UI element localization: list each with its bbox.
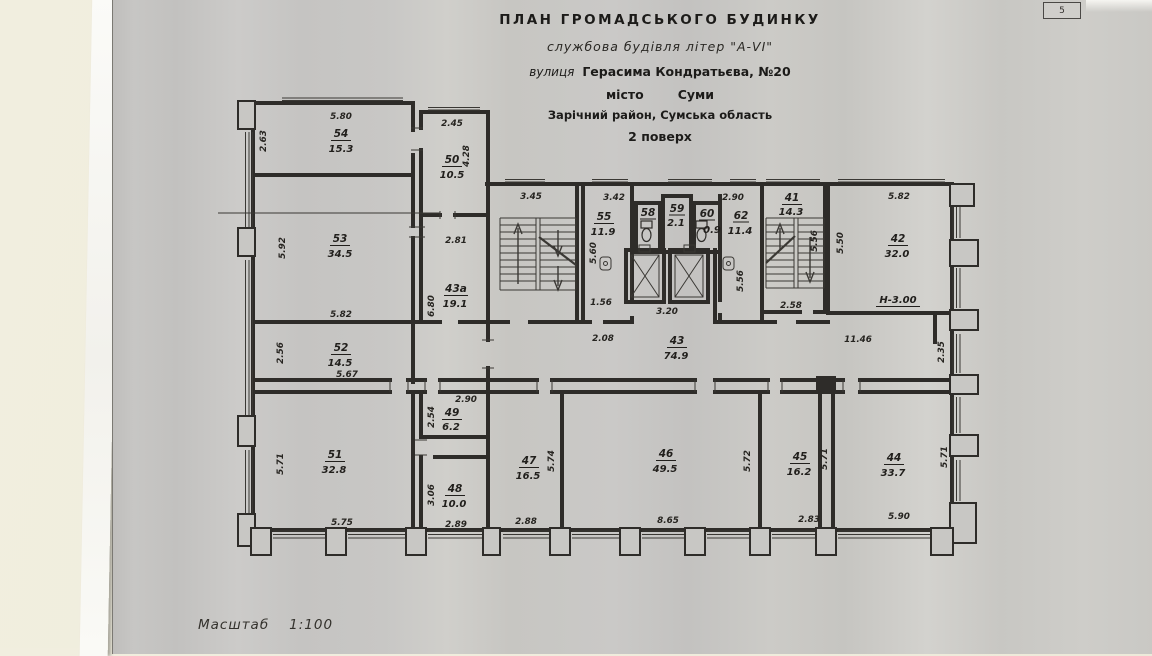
room-label-53: 53 34.5 <box>328 233 353 260</box>
room-label-54: 54 15.3 <box>329 128 354 155</box>
room-label-58: 58 <box>640 207 656 219</box>
dim: 6.80 <box>427 295 437 317</box>
room-label-43a: 43а 19.1 <box>443 283 468 310</box>
svg-text:74.9: 74.9 <box>664 351 689 362</box>
dim: 5.80 <box>330 112 352 122</box>
svg-text:32.0: 32.0 <box>885 249 910 260</box>
room-label-62: 62 11.4 <box>728 210 753 237</box>
room-label-48: 48 10.0 <box>442 483 467 510</box>
dim: 2.81 <box>445 236 467 246</box>
svg-text:44: 44 <box>886 452 902 464</box>
room-label-42: 42 32.0 <box>885 233 910 260</box>
room-label-41: 41 14.3 <box>779 192 804 218</box>
dim: 5.67 <box>336 370 359 380</box>
room-label-45: 45 16.2 <box>787 451 812 478</box>
svg-text:60: 60 <box>700 208 715 220</box>
dim: 3.20 <box>656 307 678 317</box>
svg-text:11.9: 11.9 <box>591 227 616 238</box>
dim: 5.71 <box>820 448 830 470</box>
dim: 4.28 <box>462 145 472 168</box>
dim: 5.92 <box>278 237 288 259</box>
svg-text:49: 49 <box>444 407 460 419</box>
room-label-55: 55 11.9 <box>591 211 616 238</box>
svg-text:46: 46 <box>658 448 674 460</box>
dim: 5.56 <box>810 230 820 252</box>
svg-text:62: 62 <box>734 210 749 222</box>
svg-text:11.4: 11.4 <box>728 226 753 237</box>
dim: 5.90 <box>888 512 910 522</box>
dim: 2.89 <box>445 520 467 530</box>
dim: 1.56 <box>590 298 612 308</box>
dim: 3.42 <box>603 193 625 203</box>
svg-text:42: 42 <box>890 233 906 245</box>
svg-text:6.2: 6.2 <box>442 422 460 433</box>
dim: 5.82 <box>330 310 352 320</box>
dim: 2.88 <box>515 517 537 527</box>
dim: 2.83 <box>798 515 820 525</box>
svg-text:50: 50 <box>445 154 460 166</box>
svg-text:41: 41 <box>784 192 800 204</box>
svg-text:16.2: 16.2 <box>787 467 812 478</box>
svg-text:10.5: 10.5 <box>440 170 465 181</box>
dim: 3.06 <box>427 484 437 506</box>
dim: 5.75 <box>331 518 353 528</box>
room-label-50: 50 10.5 <box>440 154 465 181</box>
svg-text:51: 51 <box>328 449 343 461</box>
dim: 5.71 <box>276 453 286 475</box>
svg-text:19.1: 19.1 <box>443 299 468 310</box>
svg-text:32.8: 32.8 <box>322 465 347 476</box>
svg-text:52: 52 <box>334 342 349 354</box>
svg-text:58: 58 <box>641 207 656 219</box>
svg-text:33.7: 33.7 <box>881 468 906 479</box>
dim: 3.45 <box>520 192 542 202</box>
dim: 2.63 <box>259 130 269 152</box>
dim: 2.45 <box>441 119 463 129</box>
staircase-right <box>766 218 824 288</box>
svg-text:0.9: 0.9 <box>703 225 721 236</box>
svg-text:15.3: 15.3 <box>329 144 354 155</box>
room-label-52: 52 14.5 <box>328 342 353 369</box>
dim: 2.08 <box>592 334 614 344</box>
height-mark: Н-3.00 <box>876 295 920 307</box>
svg-text:16.5: 16.5 <box>516 471 541 482</box>
svg-text:54: 54 <box>334 128 349 140</box>
dim: 2.35 <box>937 341 947 363</box>
walls <box>253 103 952 530</box>
dim: 11.46 <box>844 335 872 345</box>
dim: 2.90 <box>722 193 744 203</box>
room-label-59: 59 2.1 <box>667 203 685 229</box>
svg-text:Н-3.00: Н-3.00 <box>879 295 916 306</box>
wall-pier <box>816 376 836 394</box>
room-label-44: 44 33.7 <box>881 452 906 479</box>
dim: 5.60 <box>589 242 599 264</box>
svg-text:43: 43 <box>669 335 685 347</box>
dim: 2.56 <box>276 342 286 364</box>
room-label-47: 47 16.5 <box>516 455 541 482</box>
dim: 5.82 <box>888 192 910 202</box>
dim: 2.54 <box>427 406 437 428</box>
svg-text:14.5: 14.5 <box>328 358 353 369</box>
svg-text:48: 48 <box>447 483 463 495</box>
toilet-icon-58 <box>641 221 652 242</box>
dim: 2.58 <box>780 301 802 311</box>
floor-plan-drawing: 54 15.3 50 10.5 53 34.5 43а 19.1 52 14.5… <box>0 0 1152 648</box>
dim: 5.72 <box>743 450 753 472</box>
dim: 8.65 <box>657 516 679 526</box>
svg-text:43а: 43а <box>444 283 467 295</box>
pilasters <box>238 101 978 555</box>
svg-text:2.1: 2.1 <box>667 218 685 229</box>
svg-text:10.0: 10.0 <box>442 499 467 510</box>
svg-text:59: 59 <box>670 203 685 215</box>
dim: 5.50 <box>836 232 846 254</box>
photographed-floor-plan-document: { "page": { "corner_number": "5" }, "tit… <box>0 0 1152 648</box>
svg-text:55: 55 <box>597 211 612 223</box>
room-label-60: 60 0.9 <box>699 208 721 236</box>
dim: 5.71 <box>940 446 950 468</box>
dim: 5.56 <box>736 270 746 292</box>
room-label-43-corridor: 43 74.9 <box>664 335 689 362</box>
svg-text:49.5: 49.5 <box>652 464 678 475</box>
svg-text:34.5: 34.5 <box>328 249 353 260</box>
dim: 5.74 <box>547 450 557 472</box>
svg-text:14.3: 14.3 <box>779 207 804 218</box>
staircase-left <box>500 218 576 290</box>
room-label-46: 46 49.5 <box>652 448 678 475</box>
svg-text:45: 45 <box>792 451 808 463</box>
room-label-49: 49 6.2 <box>442 407 462 433</box>
svg-text:47: 47 <box>521 455 537 467</box>
dim: 2.90 <box>455 395 477 405</box>
svg-text:53: 53 <box>333 233 348 245</box>
room-label-51: 51 32.8 <box>322 449 347 476</box>
